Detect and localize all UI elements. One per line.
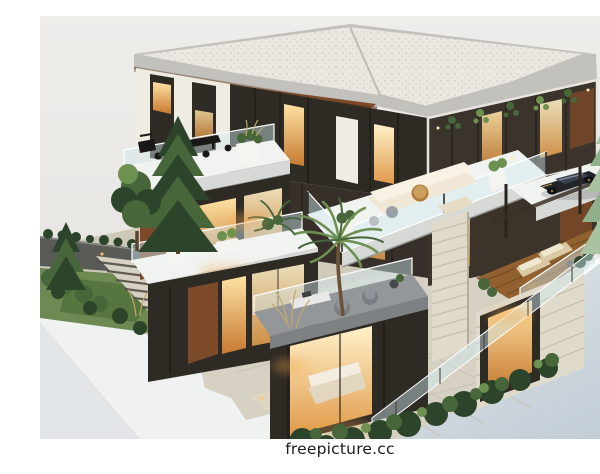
render-scene xyxy=(40,16,600,458)
stone-pillar xyxy=(432,212,468,362)
watermark-text: freepicture.cc xyxy=(285,440,394,458)
villa-render-image: freepicture.cc xyxy=(40,16,600,458)
